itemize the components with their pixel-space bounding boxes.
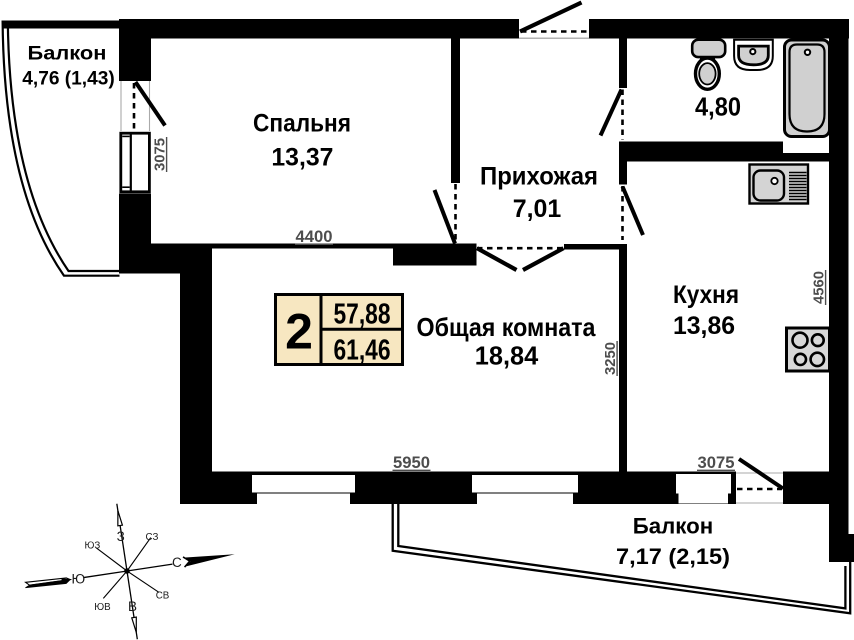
svg-text:СЗ: СЗ bbox=[146, 532, 159, 543]
svg-text:7,17 (2,15): 7,17 (2,15) bbox=[616, 544, 730, 569]
svg-text:Кухня: Кухня bbox=[673, 281, 739, 309]
svg-text:Балкон: Балкон bbox=[633, 513, 714, 538]
svg-text:5950: 5950 bbox=[393, 454, 430, 472]
svg-text:СВ: СВ bbox=[156, 591, 170, 602]
svg-text:З: З bbox=[117, 529, 125, 544]
svg-text:4,76 (1,43): 4,76 (1,43) bbox=[22, 68, 115, 89]
svg-text:Балкон: Балкон bbox=[28, 43, 107, 64]
svg-text:ЮВ: ЮВ bbox=[94, 602, 111, 613]
svg-text:7,01: 7,01 bbox=[513, 195, 562, 223]
svg-text:С: С bbox=[172, 555, 182, 570]
svg-text:4560: 4560 bbox=[810, 271, 827, 304]
svg-text:Ю: Ю bbox=[71, 572, 85, 587]
svg-text:Спальня: Спальня bbox=[253, 110, 351, 138]
svg-text:4,80: 4,80 bbox=[695, 92, 741, 122]
svg-text:61,46: 61,46 bbox=[334, 335, 391, 367]
svg-text:18,84: 18,84 bbox=[475, 341, 539, 371]
svg-text:13,37: 13,37 bbox=[271, 144, 333, 172]
svg-text:Прихожая: Прихожая bbox=[480, 163, 598, 191]
svg-text:2: 2 bbox=[285, 304, 313, 360]
svg-text:В: В bbox=[128, 599, 137, 614]
svg-text:4400: 4400 bbox=[296, 228, 333, 246]
svg-text:57,88: 57,88 bbox=[334, 299, 391, 331]
svg-text:ЮЗ: ЮЗ bbox=[84, 541, 100, 552]
svg-text:3075: 3075 bbox=[151, 138, 168, 171]
svg-text:13,86: 13,86 bbox=[673, 312, 735, 340]
svg-text:3250: 3250 bbox=[602, 342, 619, 375]
svg-text:3075: 3075 bbox=[698, 454, 735, 472]
svg-text:Общая комната: Общая комната bbox=[417, 312, 596, 342]
